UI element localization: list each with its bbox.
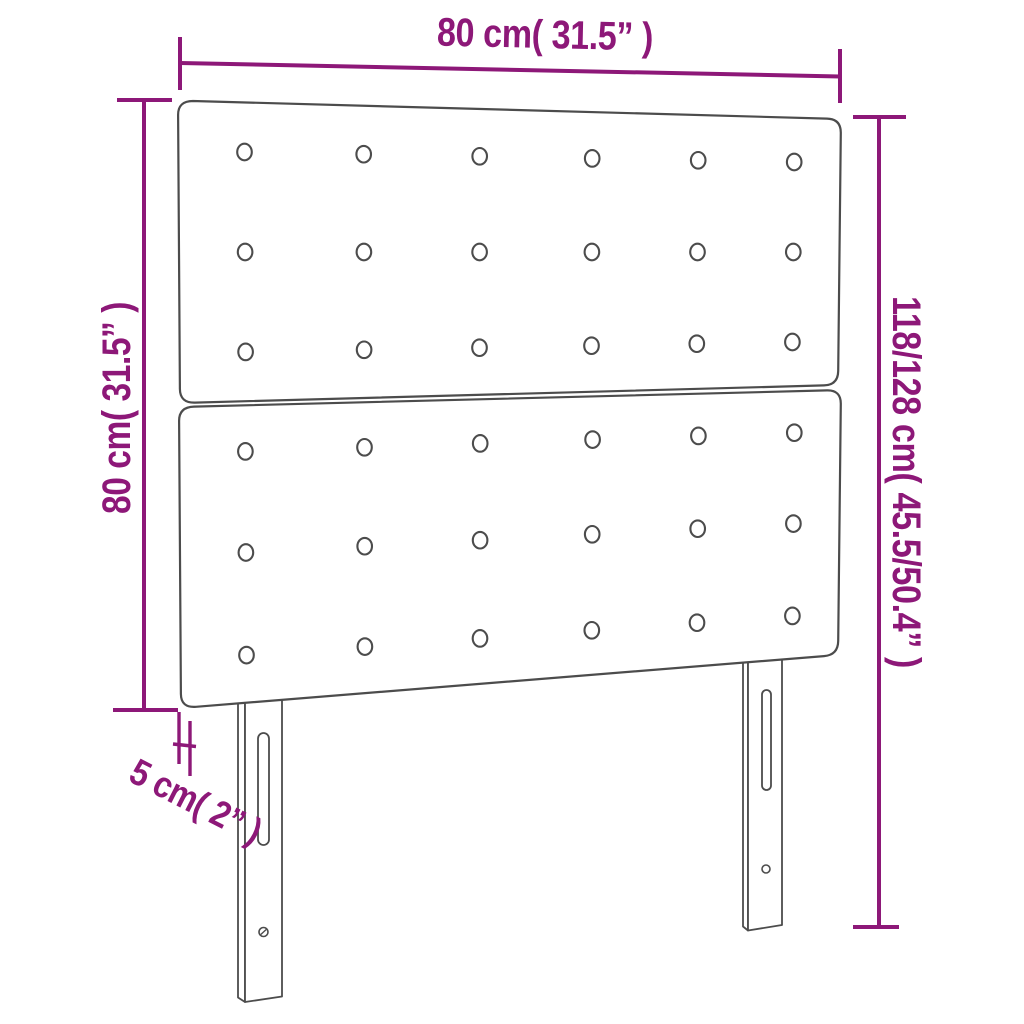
tufting-button xyxy=(690,520,705,537)
tufting-button xyxy=(585,150,600,167)
tufting-button xyxy=(690,335,705,352)
width-dimension-label: 80 cm( 31.5” ) xyxy=(437,11,654,60)
left-height-dimension-label: 80 cm( 31.5” ) xyxy=(95,302,139,514)
tufting-button xyxy=(239,647,254,664)
left-leg-screw-hole xyxy=(259,928,268,937)
headboard-top-panel xyxy=(178,101,841,403)
tufting-button xyxy=(238,244,253,261)
headboard-bottom-panel xyxy=(179,390,841,707)
tufting-button xyxy=(585,244,600,261)
tufting-button xyxy=(786,515,801,532)
tufting-button xyxy=(238,443,253,460)
tufting-button xyxy=(787,424,802,441)
right-leg-slot xyxy=(762,690,771,790)
tufting-button xyxy=(473,435,488,452)
tufting-button xyxy=(585,526,600,543)
right-leg-screw-hole xyxy=(762,865,770,873)
tufting-button xyxy=(691,152,706,169)
tufting-button xyxy=(357,342,372,359)
right-height-dimension: 118/128 cm( 45.5/50.4” ) xyxy=(853,117,928,927)
left-height-dimension: 80 cm( 31.5” ) xyxy=(95,100,178,710)
left-leg-side-face xyxy=(238,700,245,1002)
tufting-button xyxy=(473,532,488,549)
tufting-button xyxy=(690,244,705,261)
tufting-button xyxy=(473,630,488,647)
tufting-button xyxy=(239,544,254,561)
tufting-button xyxy=(785,608,800,625)
tufting-button xyxy=(357,244,372,261)
tufting-button xyxy=(585,431,600,448)
width-dimension: 80 cm( 31.5” ) xyxy=(180,11,840,103)
tufting-button xyxy=(787,154,802,171)
tufting-button xyxy=(472,339,487,356)
tufting-button xyxy=(690,614,705,631)
tufting-button xyxy=(785,334,800,351)
tufting-button xyxy=(585,622,600,639)
tufting-button xyxy=(357,439,372,456)
tufting-button xyxy=(584,337,599,354)
tufting-button xyxy=(472,148,487,165)
headboard-dimension-diagram: 80 cm( 31.5” ) 80 cm( 31.5” ) 118/128 cm… xyxy=(0,0,1024,1024)
right-height-dimension-label: 118/128 cm( 45.5/50.4” ) xyxy=(884,296,928,668)
width-dimension-line xyxy=(180,63,840,77)
tufting-button xyxy=(786,244,801,261)
tufting-button xyxy=(356,146,371,163)
tufting-button xyxy=(237,144,252,161)
tufting-button xyxy=(691,428,706,445)
thickness-connector xyxy=(173,744,196,747)
tufting-button xyxy=(357,538,372,555)
diagram-canvas: 80 cm( 31.5” ) 80 cm( 31.5” ) 118/128 cm… xyxy=(0,0,1024,1024)
tufting-button xyxy=(358,638,373,655)
tufting-button xyxy=(238,344,253,361)
tufting-button xyxy=(472,244,487,261)
